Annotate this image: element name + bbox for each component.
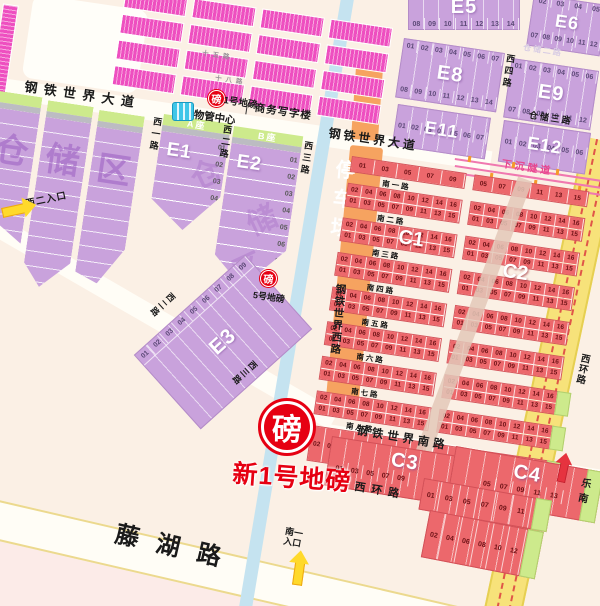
unit-number: 15 [546, 367, 562, 379]
market-stall-block [324, 44, 389, 73]
unit-number: 15 [434, 279, 450, 291]
unit-number: 14 [503, 18, 519, 30]
unit-number: 08 [409, 18, 425, 30]
unit-number: 15 [536, 436, 552, 448]
unit-number: 12 [472, 18, 488, 30]
new-weighbridge-char: 磅 [264, 404, 310, 450]
unit-number: 16 [538, 425, 554, 437]
unit-number: 12 [575, 113, 591, 127]
unit-number: 13 [528, 498, 551, 531]
unit-number: 16 [543, 390, 559, 402]
weighbridge-5-icon: 磅 [260, 270, 277, 287]
block-e5-label: E5 [409, 0, 519, 17]
unit-number: 05 [396, 164, 421, 181]
unit-number: 04 [569, 0, 588, 13]
unit-number: 12 [587, 38, 600, 52]
unit-number: 15 [424, 348, 440, 360]
unit-number: 16 [558, 286, 574, 298]
unit-number: 16 [569, 217, 585, 229]
block-e8: 01020304050607 E8 08091011121314 [395, 38, 505, 112]
unit-number: 15 [557, 298, 573, 310]
unit-number: 11 [456, 18, 472, 30]
unit-number: 15 [562, 263, 578, 275]
market-stall-block [328, 19, 393, 48]
block-c2-label: C2 [501, 260, 530, 287]
entrance-south1-label: 南一 入口 [282, 526, 303, 550]
market-stall-block [320, 70, 385, 99]
market-map: 停车场 十五路 十八路 仓 储 区 西一路 A座 E1 0102030405 B… [0, 0, 600, 606]
unit-number: 16 [420, 372, 436, 384]
unit-number: 16 [425, 337, 441, 349]
unit-number: 01 [351, 157, 376, 174]
unit-number: 05 [473, 175, 494, 192]
unit-number: 16 [430, 302, 446, 314]
unit-number: 06 [276, 236, 286, 254]
unit-number: 15 [444, 210, 460, 222]
entrance-south1-line2: 入口 [282, 536, 302, 549]
unit-number: 03 [283, 185, 293, 203]
new-weighbridge-badge: 磅 [258, 398, 316, 456]
unit-number: 16 [441, 233, 457, 245]
unit-number: 01 [289, 152, 299, 170]
unit-number: 15 [439, 245, 455, 257]
unit-number: 16 [446, 199, 462, 211]
unit-number: 03 [373, 161, 398, 178]
market-stall-block [191, 0, 256, 27]
unit-number: 15 [418, 383, 434, 395]
unit-number: 15 [541, 401, 557, 413]
unit-number: 09 [425, 18, 441, 30]
unit-number: 02 [286, 169, 296, 187]
unit-number: 16 [563, 252, 579, 264]
unit-number: 03 [551, 0, 570, 10]
block-e5: E5 08091011121314 [408, 0, 520, 30]
unit-number: 09 [441, 171, 466, 188]
market-stall-block [252, 60, 317, 89]
unit-number: 07 [492, 178, 513, 195]
unit-number: 16 [553, 321, 569, 333]
new-weighbridge-label: 新1号地磅 [231, 454, 352, 498]
unit-number: 15 [429, 314, 445, 326]
unit-number: 07 [273, 253, 283, 271]
unit-number: 02 [533, 0, 552, 8]
unit-number: 05 [206, 207, 216, 225]
market-stall-block [256, 34, 321, 63]
unit-number: 15 [567, 190, 588, 207]
unit-number: 13 [488, 18, 504, 30]
unit-row: 08091011121314 [409, 18, 519, 30]
unit-number: 15 [551, 332, 567, 344]
unit-number: 07 [488, 52, 504, 66]
market-stall-block [115, 39, 180, 68]
unit-number: 16 [436, 268, 452, 280]
market-stall-block [260, 8, 325, 37]
watermark-char: 仓 [0, 120, 38, 175]
unit-number: 13 [549, 187, 570, 204]
unit-number: 07 [418, 167, 443, 184]
market-stall-block [119, 14, 184, 43]
unit-number: 15 [567, 228, 583, 240]
property-center-icon [172, 102, 194, 121]
unit-number: 16 [548, 355, 564, 367]
unit-number: 05 [587, 3, 600, 16]
watermark-char: 区 [88, 140, 141, 195]
block-c1-label: C1 [397, 226, 426, 253]
unit-number: 04 [281, 202, 291, 220]
block-e2-label: E2 [235, 152, 263, 175]
unit-number: 14 [481, 95, 497, 109]
arrow-head [289, 549, 311, 565]
unit-number: 06 [582, 70, 598, 84]
unit-number: 10 [440, 18, 456, 30]
watermark-char: 储 [37, 130, 90, 185]
unit-number: 11 [530, 184, 551, 201]
